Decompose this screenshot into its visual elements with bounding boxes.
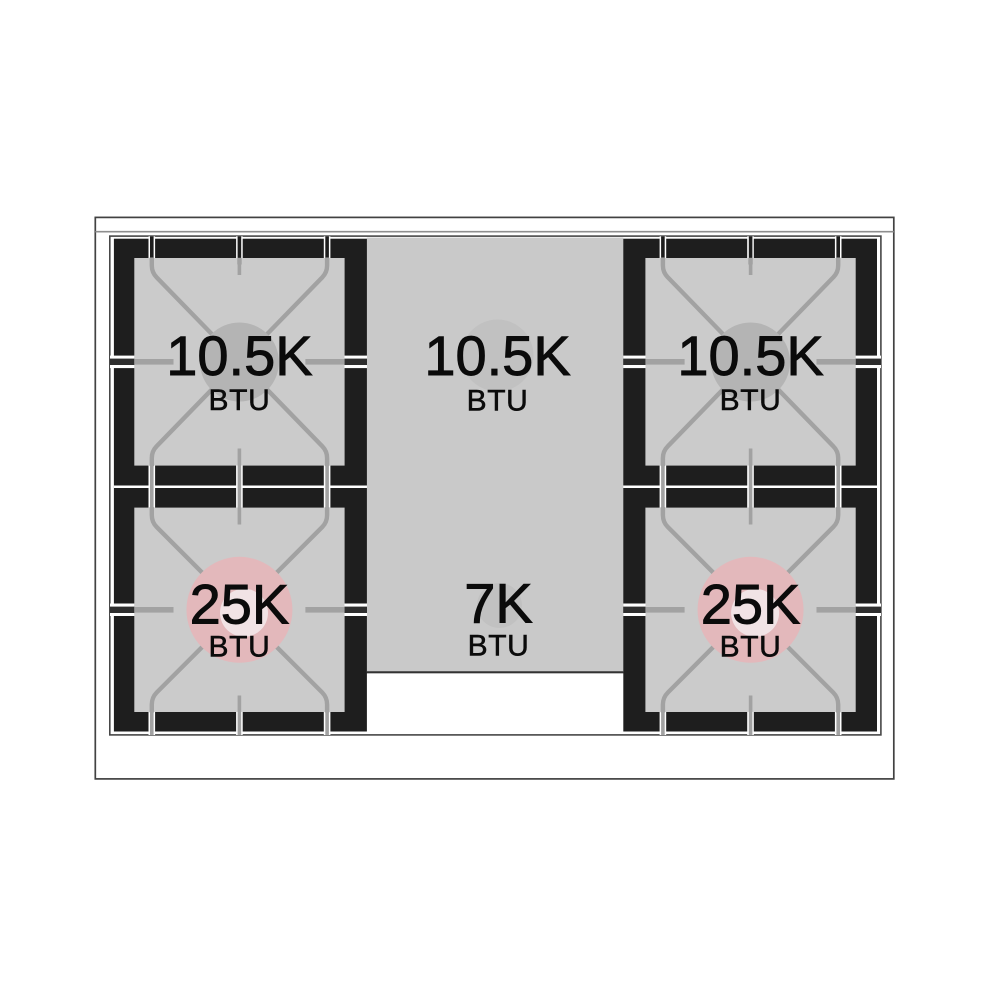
svg-text:BTU: BTU <box>209 631 271 664</box>
svg-text:7K: 7K <box>464 572 533 635</box>
svg-text:25K: 25K <box>190 573 290 636</box>
svg-text:BTU: BTU <box>720 384 782 417</box>
svg-text:10.5K: 10.5K <box>677 324 823 387</box>
svg-text:BTU: BTU <box>468 630 530 663</box>
svg-text:BTU: BTU <box>720 631 782 664</box>
svg-text:10.5K: 10.5K <box>424 324 570 387</box>
svg-text:25K: 25K <box>701 573 801 636</box>
svg-text:10.5K: 10.5K <box>166 324 312 387</box>
svg-text:BTU: BTU <box>209 384 271 417</box>
svg-text:BTU: BTU <box>467 385 529 418</box>
